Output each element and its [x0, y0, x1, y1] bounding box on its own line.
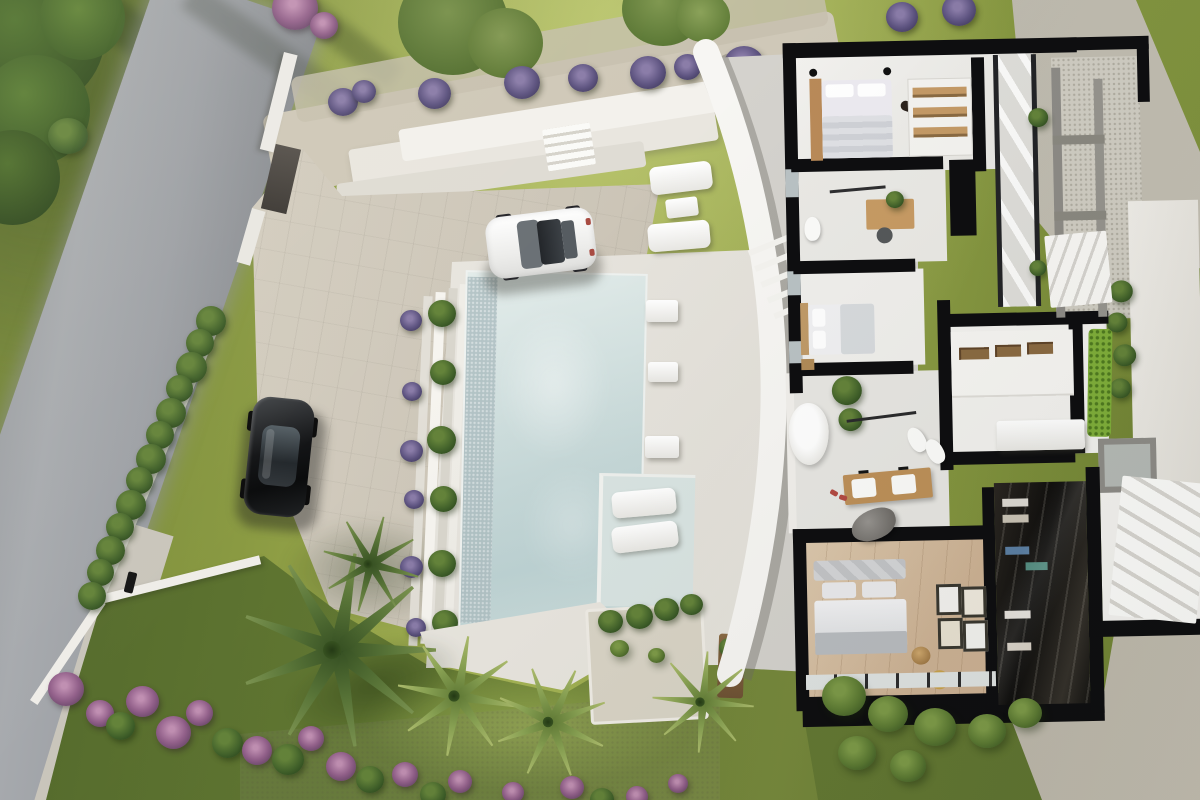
bed-duvet: [822, 115, 893, 158]
basin: [851, 477, 877, 498]
pillow: [813, 331, 826, 349]
terrace-steps: [542, 123, 596, 172]
gallery-frames: [936, 583, 984, 670]
toilet: [804, 217, 820, 241]
house-cutaway: [774, 13, 1200, 728]
wood-niche: [1027, 342, 1053, 355]
nightstand: [801, 359, 814, 370]
bed-duvet: [840, 304, 875, 355]
water-highlight: [498, 309, 611, 461]
car-taillight: [585, 218, 591, 226]
balcony-plant: [1029, 260, 1046, 276]
wall: [971, 57, 986, 171]
closet-gloss: [994, 481, 1091, 705]
balcony-plant: [1028, 108, 1048, 127]
wall: [945, 449, 1075, 465]
black-car: [242, 395, 316, 519]
picture-frame: [961, 586, 987, 618]
hall-feature-wall: [951, 329, 1074, 398]
wardrobe: [907, 77, 973, 156]
pillow: [825, 84, 853, 98]
small-shrub: [48, 118, 88, 154]
white-car: [484, 206, 599, 281]
east-shrub: [1110, 378, 1131, 398]
faucet: [858, 470, 868, 474]
pillow: [857, 83, 885, 97]
faucet: [898, 466, 908, 470]
wall: [793, 259, 915, 275]
picture-frame: [963, 620, 989, 652]
basin: [891, 474, 917, 495]
picture-frame: [936, 584, 962, 616]
staircase-east: [1044, 231, 1112, 308]
west-glass: [787, 271, 800, 295]
hall-bench: [997, 419, 1086, 451]
wardrobe-shelf: [913, 127, 967, 138]
pillow: [862, 581, 896, 598]
green-wall: [1087, 329, 1113, 437]
wardrobe-shelf: [913, 87, 967, 98]
concrete-fin: [1053, 135, 1105, 145]
wall: [949, 159, 977, 236]
villa-aerial-render: [0, 0, 1200, 800]
olive-tree: [468, 8, 543, 78]
pillow: [822, 582, 856, 599]
staircase-main: [1108, 476, 1200, 624]
bed-headboard-quilted: [813, 559, 905, 581]
pillow: [812, 309, 825, 327]
car-taillight: [589, 249, 595, 257]
wood-niche: [995, 344, 1021, 357]
walk-in-closet: [994, 481, 1091, 705]
west-glass: [785, 169, 799, 197]
wall: [1137, 44, 1150, 102]
picture-frame: [938, 618, 964, 650]
wood-niche: [959, 347, 989, 360]
bed-blanket: [815, 631, 907, 655]
wardrobe-shelf: [913, 107, 967, 118]
concrete-fin: [1054, 211, 1106, 221]
